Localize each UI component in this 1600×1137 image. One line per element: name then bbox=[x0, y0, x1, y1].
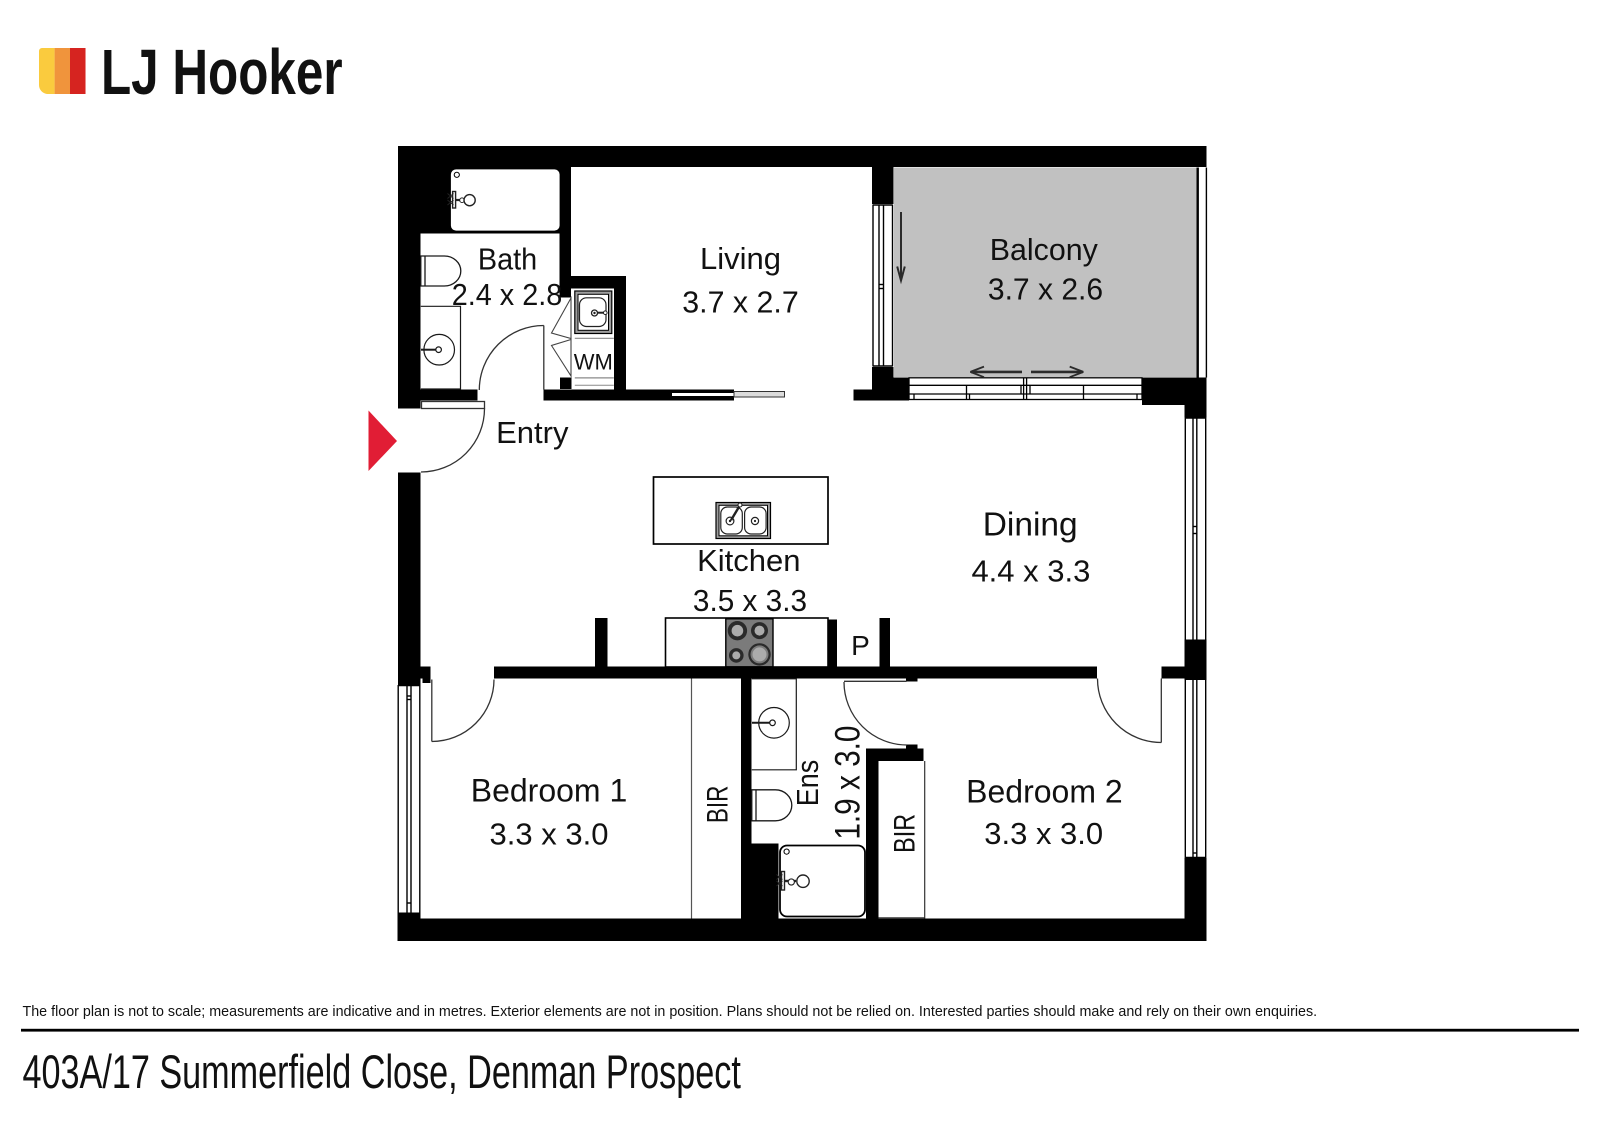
svg-text:The floor plan is not to scale: The floor plan is not to scale; measurem… bbox=[23, 1004, 1318, 1020]
svg-text:BIR: BIR bbox=[700, 786, 734, 823]
svg-text:Bath: Bath bbox=[478, 243, 537, 277]
svg-text:3.7 x 2.7: 3.7 x 2.7 bbox=[682, 284, 799, 319]
svg-text:BIR: BIR bbox=[888, 814, 921, 853]
svg-text:3.7 x 2.6: 3.7 x 2.6 bbox=[988, 272, 1103, 307]
svg-text:P: P bbox=[851, 630, 870, 661]
svg-text:3.5 x 3.3: 3.5 x 3.3 bbox=[693, 583, 807, 618]
svg-text:4.4 x 3.3: 4.4 x 3.3 bbox=[971, 554, 1090, 589]
svg-text:Ens: Ens bbox=[791, 760, 825, 806]
svg-text:Entry: Entry bbox=[496, 415, 569, 450]
svg-text:3.3 x 3.0: 3.3 x 3.0 bbox=[490, 817, 609, 852]
svg-text:Bedroom 2: Bedroom 2 bbox=[966, 774, 1123, 810]
svg-text:Balcony: Balcony bbox=[990, 232, 1099, 267]
svg-text:Dining: Dining bbox=[983, 507, 1078, 544]
svg-text:WM: WM bbox=[574, 350, 613, 375]
svg-text:LJ Hooker: LJ Hooker bbox=[101, 37, 343, 109]
svg-text:2.4 x 2.8: 2.4 x 2.8 bbox=[452, 278, 563, 312]
svg-text:Kitchen: Kitchen bbox=[697, 543, 800, 578]
svg-text:Living: Living bbox=[700, 241, 781, 276]
svg-text:Bedroom 1: Bedroom 1 bbox=[471, 773, 628, 809]
svg-text:403A/17 Summerfield Close, Den: 403A/17 Summerfield Close, Denman Prospe… bbox=[23, 1046, 742, 1099]
svg-text:1.9 x 3.0: 1.9 x 3.0 bbox=[828, 726, 867, 840]
svg-text:3.3 x 3.0: 3.3 x 3.0 bbox=[984, 816, 1103, 851]
